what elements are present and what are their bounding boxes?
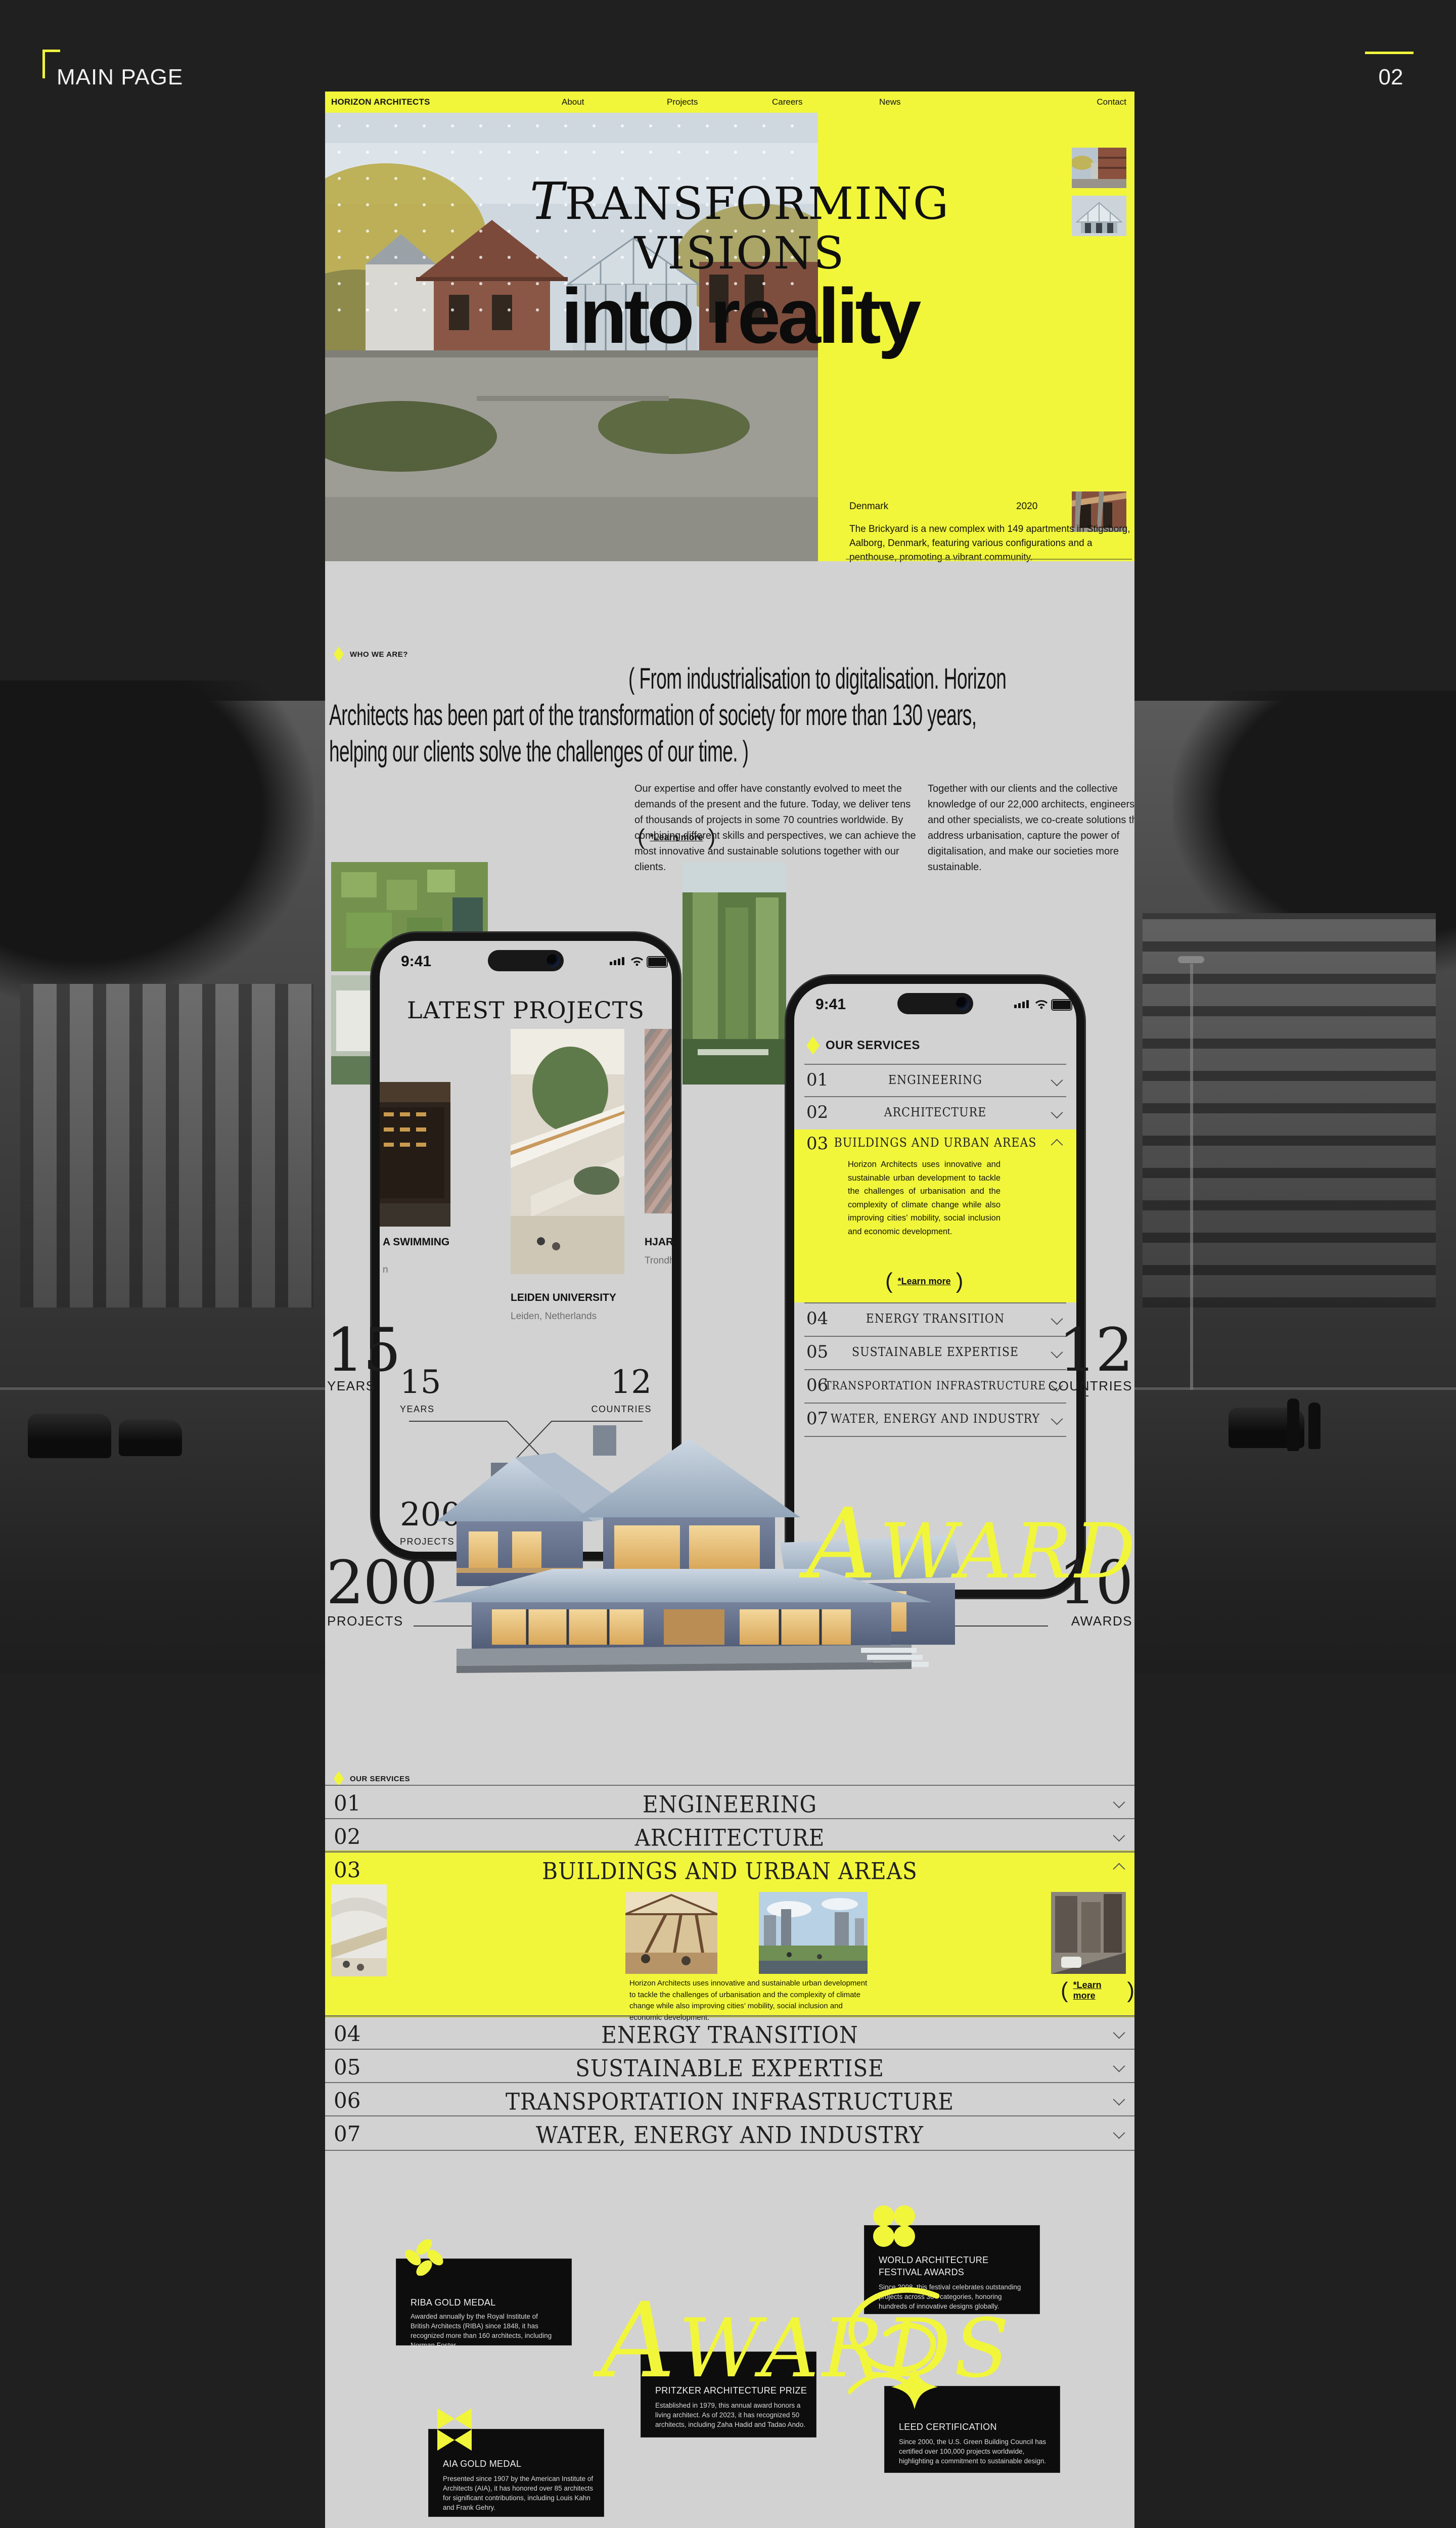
service-image-greenhouse <box>625 1892 717 1974</box>
page-label: MAIN PAGE <box>57 65 183 90</box>
service-row-05[interactable]: 05 SUSTAINABLE EXPERTISE <box>325 2049 1134 2083</box>
diamond-bullet-icon <box>806 1036 820 1055</box>
diamond-bullet-icon <box>334 1771 344 1786</box>
service-row-01[interactable]: 01 ENGINEERING <box>325 1785 1134 1819</box>
wifi-icon <box>1035 999 1048 1009</box>
service-row-02[interactable]: 02 ARCHITECTURE <box>325 1818 1134 1853</box>
award-description: Since 2000, the U.S. Green Building Coun… <box>899 2437 1051 2466</box>
phone-service-row-06[interactable]: 06 TRANSPORTATION INFRASTRUCTURE <box>794 1369 1076 1403</box>
stat-value: 15 <box>326 1315 400 1385</box>
service-image-skyline <box>759 1892 868 1974</box>
award-name: RIBA GOLD MEDAL <box>411 2297 496 2308</box>
car-silhouette <box>119 1420 182 1456</box>
stat-label: AWARDS <box>1071 1613 1132 1629</box>
phone-service-description: Horizon Architects uses innovative and s… <box>848 1158 1000 1238</box>
stat-label: COUNTRIES <box>591 1404 652 1415</box>
stat-label: PROJECTS <box>327 1613 403 1629</box>
phone-services-label-text: OUR SERVICES <box>826 1039 920 1053</box>
person-silhouette <box>1287 1398 1299 1451</box>
stat-label: COUNTRIES <box>1048 1378 1132 1394</box>
page-number-rule <box>1365 52 1414 54</box>
flourish-line <box>848 2367 909 2397</box>
stat-value: 12 <box>611 1364 652 1401</box>
dynamic-island <box>897 993 973 1014</box>
stat-value: 200 <box>326 1548 437 1617</box>
signal-icon <box>1014 1000 1029 1008</box>
award-name: WORLD ARCHITECTURE FESTIVAL AWARDS <box>879 2254 1020 2278</box>
award-description: Awarded annually by the Royal Institute … <box>411 2312 558 2350</box>
four-petal-flower-icon <box>405 2239 443 2276</box>
phone-service-row-04[interactable]: 04 ENERGY TRANSITION <box>794 1302 1076 1336</box>
building-silhouette <box>1143 913 1436 1307</box>
tree-silhouette <box>0 681 313 1004</box>
service-row-04[interactable]: 04 ENERGY TRANSITION <box>325 2015 1134 2050</box>
service-image-street <box>1051 1892 1126 1974</box>
service-learn-more-button[interactable]: ( *Learn more ) <box>1061 1980 1134 2001</box>
awards-script-title: AWARDS <box>601 2281 1012 2401</box>
award-description: Presented since 1907 by the American Ins… <box>443 2474 595 2512</box>
stat-label: YEARS <box>400 1404 435 1415</box>
phone-learn-more-button[interactable]: ( *Learn more ) <box>885 1271 963 1291</box>
phone2-status-time: 9:41 <box>815 996 846 1013</box>
website-mockup: HORIZON ARCHITECTS About Projects Career… <box>325 92 1134 2528</box>
award-description: Established in 1979, this annual award h… <box>655 2401 807 2429</box>
services-label-text: OUR SERVICES <box>350 1775 410 1783</box>
service-row-03-expanded[interactable]: 03 BUILDINGS AND URBAN AREAS Horizon Arc… <box>325 1852 1134 2016</box>
phone-service-row-01[interactable]: 01 ENGINEERING <box>794 1064 1076 1096</box>
phone-service-row-02[interactable]: 02 ARCHITECTURE <box>794 1096 1076 1130</box>
double-bowtie-icon <box>436 2408 473 2452</box>
phone-service-row-05[interactable]: 05 SUSTAINABLE EXPERTISE <box>794 1336 1076 1369</box>
building-silhouette <box>20 984 313 1307</box>
street-lamp <box>1190 964 1193 1398</box>
phone-services-label: OUR SERVICES <box>806 1036 920 1055</box>
service-row-07[interactable]: 07 WATER, ENERGY AND INDUSTRY <box>325 2115 1134 2151</box>
awards-script-overlay: AWARDS <box>806 1488 1134 1601</box>
person-silhouette <box>1308 1403 1321 1449</box>
service-image-interior <box>331 1884 387 1976</box>
design-canvas: MAIN PAGE 02 HORIZON ARCHITECTS About Pr… <box>0 0 1456 2528</box>
services-label: OUR SERVICES <box>334 1771 410 1786</box>
stat-value: 12 <box>1059 1315 1132 1385</box>
car-silhouette <box>28 1414 111 1458</box>
camera-icon <box>956 997 969 1010</box>
street-lamp-head <box>1178 956 1204 963</box>
award-name: AIA GOLD MEDAL <box>443 2459 521 2469</box>
phone-service-row-03-expanded[interactable]: 03 BUILDINGS AND URBAN AREAS Horizon Arc… <box>794 1130 1076 1302</box>
service-row-06[interactable]: 06 TRANSPORTATION INFRASTRUCTURE <box>325 2082 1134 2116</box>
stat-label: YEARS <box>327 1378 376 1394</box>
award-name: LEED CERTIFICATION <box>899 2422 997 2432</box>
battery-icon <box>1051 999 1072 1011</box>
stat-value: 15 <box>400 1364 441 1401</box>
four-circles-icon <box>871 2204 917 2248</box>
page-number: 02 <box>1368 65 1414 90</box>
